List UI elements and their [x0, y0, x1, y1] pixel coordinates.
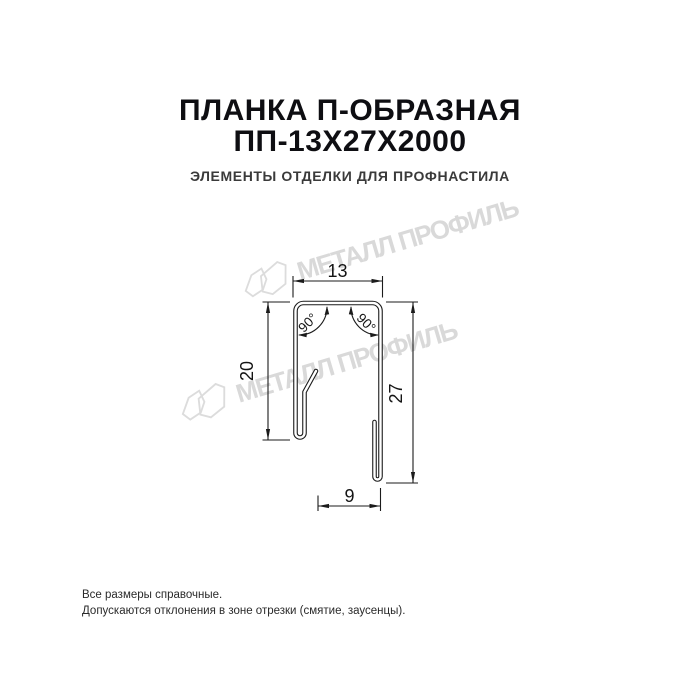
- dimension-left-height: 20: [237, 302, 290, 440]
- footer-note-1: Все размеры справочные.: [82, 588, 405, 604]
- arc-arrow-icon: [349, 306, 354, 315]
- arrow-left-icon: [293, 279, 304, 283]
- dimension-bottom-width: 9: [318, 486, 381, 511]
- angle-value-left: 90°: [295, 310, 320, 335]
- arrow-down-icon: [411, 472, 415, 483]
- arrow-left-icon: [318, 504, 329, 508]
- footer-notes: Все размеры справочные. Допускаются откл…: [82, 588, 405, 619]
- footer-note-2: Допускаются отклонения в зоне отрезки (с…: [82, 604, 405, 620]
- angle-annotation-right: 90°: [349, 306, 379, 337]
- arrow-right-icon: [370, 504, 381, 508]
- dimension-top-width: 13: [293, 261, 383, 298]
- arrow-down-icon: [266, 429, 270, 440]
- dimension-right-height: 27: [386, 302, 418, 483]
- product-drawing-page: ПЛАНКА П-ОБРАЗНАЯ ПП-13Х27Х2000 ЭЛЕМЕНТЫ…: [0, 0, 700, 700]
- dimension-value-bottom: 9: [344, 486, 354, 506]
- arrow-up-icon: [266, 302, 270, 313]
- arc-arrow-icon: [325, 306, 330, 315]
- arc-arrow-icon: [370, 333, 379, 337]
- angle-annotation-left: 90°: [295, 306, 329, 337]
- dimension-value-left: 20: [237, 361, 257, 381]
- arrow-right-icon: [372, 279, 383, 283]
- angle-value-right: 90°: [354, 310, 379, 335]
- arrow-up-icon: [411, 302, 415, 313]
- dimension-value-right: 27: [386, 383, 406, 403]
- dimension-value-top: 13: [327, 261, 347, 281]
